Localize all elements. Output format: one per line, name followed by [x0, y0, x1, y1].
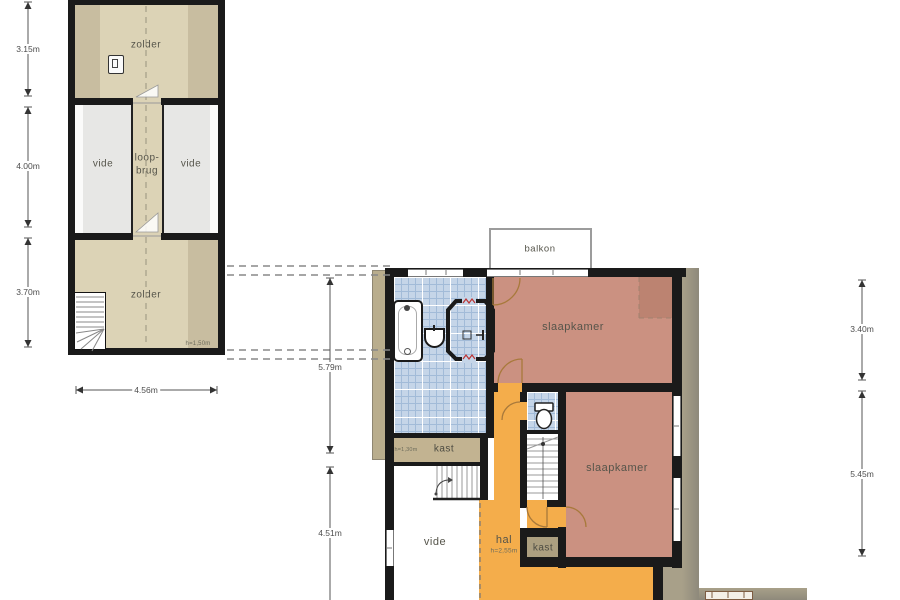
roof-edge-strip	[372, 270, 386, 460]
room-hal-fill	[520, 567, 653, 600]
loopbrug-rail	[131, 105, 133, 233]
dimension-label: 4.00m	[14, 161, 42, 171]
stairwell-floor	[527, 434, 558, 500]
height-note-attic: h=1,50m	[186, 341, 211, 347]
room-hal-fill	[494, 392, 520, 600]
floorplan-canvas: zolder vide loop- brug vide zolder h=1,5…	[0, 0, 900, 600]
wall-segment	[480, 433, 488, 500]
wall-segment	[385, 433, 488, 438]
window	[386, 530, 394, 566]
roof-edge-strip	[663, 567, 682, 600]
loopbrug-rail	[162, 105, 164, 233]
room-label-kast-right: kast	[533, 543, 553, 554]
doorway	[498, 383, 522, 392]
room-label-hal: hal	[496, 534, 512, 546]
roof-slope-strip	[75, 5, 100, 98]
window	[673, 478, 681, 541]
dimension-label: 5.45m	[848, 469, 876, 479]
toilet-floor	[527, 392, 558, 430]
balcony-door-window	[487, 269, 588, 277]
room-label-balkon: balkon	[525, 244, 556, 255]
bathtub-faucet	[404, 305, 410, 311]
doorway	[133, 98, 161, 105]
boiler-icon	[108, 55, 124, 74]
attic-stairs	[74, 292, 106, 350]
doorway	[527, 500, 547, 507]
dimension-label: 4.51m	[316, 528, 344, 538]
roof-slope-strip	[188, 240, 218, 348]
dimension-label: 3.15m	[14, 44, 42, 54]
wall-segment	[486, 268, 494, 438]
room-label-zolder-bottom: zolder	[131, 290, 161, 301]
wall-segment	[558, 385, 566, 568]
roof-edge-strip	[682, 268, 699, 600]
dimension-label: 5.79m	[316, 362, 344, 372]
room-label-vide-left: vide	[93, 159, 113, 170]
doorway	[520, 402, 527, 420]
dimension-label: 3.70m	[14, 287, 42, 297]
vide-edge-strip	[75, 105, 83, 233]
wall-segment	[218, 0, 225, 355]
vide-edge-strip	[210, 105, 218, 233]
wall-segment	[385, 462, 488, 466]
window	[673, 396, 681, 456]
vide-stairs-arrow	[436, 480, 448, 493]
room-label-vide-right: vide	[181, 159, 201, 170]
window	[705, 591, 753, 600]
room-label-slaapkamer-top: slaapkamer	[542, 321, 604, 333]
room-label-loopbrug-2: brug	[136, 166, 158, 177]
wall-segment	[520, 557, 682, 567]
doorway	[133, 233, 161, 240]
roof-slope-strip	[188, 5, 218, 98]
room-slaapkamer-bottom-fill	[566, 392, 672, 557]
dimension-label: 4.56m	[132, 385, 160, 395]
wall-segment	[527, 430, 558, 434]
sink	[424, 328, 445, 348]
bathtub-drain	[404, 348, 411, 355]
height-note-hal: h=2,55m	[491, 548, 518, 555]
room-hal-fill	[527, 507, 558, 528]
wall-segment	[653, 567, 663, 600]
room-label-loopbrug-1: loop-	[135, 153, 160, 164]
height-note-kast: h=1,30m	[395, 447, 418, 453]
vide-stairs-treads	[437, 466, 477, 498]
room-label-vide: vide	[424, 536, 446, 548]
room-label-slaapkamer-bottom: slaapkamer	[586, 462, 648, 474]
window	[408, 269, 463, 277]
alignment-dashed-lines	[227, 266, 392, 359]
room-label-kast-left: kast	[434, 444, 454, 455]
wall-segment	[68, 0, 225, 5]
roof-slope-zone	[639, 277, 672, 318]
room-label-zolder-top: zolder	[131, 40, 161, 51]
bathtub	[393, 300, 423, 362]
dimension-label: 3.40m	[848, 324, 876, 334]
boiler-icon-detail	[112, 59, 118, 68]
doorway	[558, 507, 566, 527]
